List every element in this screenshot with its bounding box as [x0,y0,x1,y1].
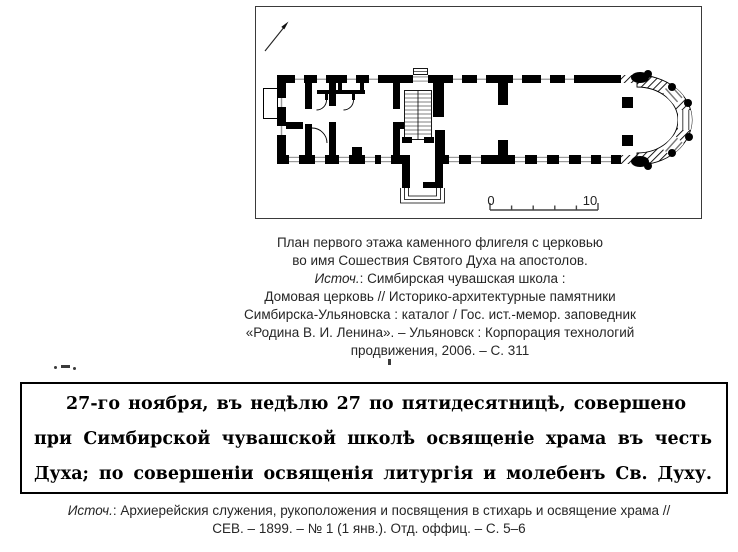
caption-line: во имя Сошествия Святого Духа на апостол… [170,252,710,270]
pillar [622,135,633,146]
caption-line: продвижения, 2006. – С. 311 [170,342,710,360]
floor-plan-drawing: 0 10 [255,6,702,219]
source-label: Источ. [68,503,113,518]
scan-artifact [388,359,391,365]
scan-artifact [73,367,76,370]
source-rest: : Архиерейския служения, рукоположения и… [113,503,670,518]
scan-artifact [61,365,70,368]
scan-artifact [54,366,57,369]
excerpt-line: Духа; по совершеніи освященія литургія и… [34,457,712,492]
source-citation-line: Источ.: Архиерейския служения, рукополож… [0,502,738,520]
plan-caption: План первого этажа каменного флигеля с ц… [170,234,710,360]
caption-line: «Родина В. И. Ленина». – Ульяновск : Кор… [170,324,710,342]
excerpt-box: 27-го ноября, въ недѣлю 27 по пятидесятн… [20,382,728,494]
source-citation: Источ.: Архиерейския служения, рукополож… [0,502,738,538]
pillar [622,97,633,108]
excerpt-line: 27-го ноября, въ недѣлю 27 по пятидесятн… [34,387,712,422]
source-citation-line: СЕВ. – 1899. – № 1 (1 янв.). Отд. оффиц.… [0,520,738,538]
caption-line: План первого этажа каменного флигеля с ц… [170,234,710,252]
caption-line: Симбирска-Ульяновска : каталог / Гос. ис… [170,306,710,324]
caption-line: Домовая церковь // Историко-архитектурны… [170,288,710,306]
caption-source-line: Источ.: Симбирская чувашская школа : [170,270,710,288]
source-label: Источ. [314,271,359,286]
document-page: 0 10 План первого этажа каменного флигел… [0,0,738,552]
source-rest: : Симбирская чувашская школа : [360,271,566,286]
scale-ten-label: 10 [583,193,597,208]
plan-frame [256,7,702,219]
excerpt-line: при Симбирской чувашской школѣ освященіе… [34,422,712,457]
floor-plan-figure: 0 10 [255,6,702,219]
scale-zero-label: 0 [487,193,494,208]
